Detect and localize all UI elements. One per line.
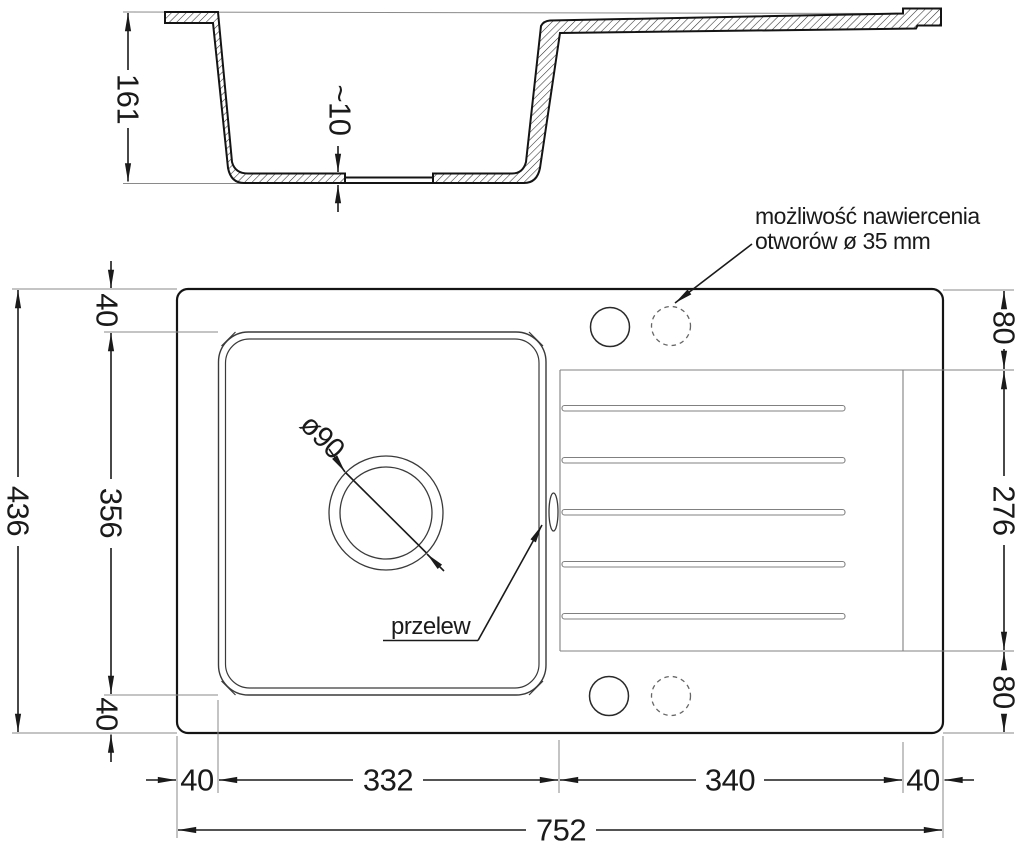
dim-drainer-offset-bottom: 80 — [987, 675, 1022, 709]
drill-note-line1: możliwość nawiercenia — [755, 203, 980, 229]
groove — [562, 406, 845, 412]
technical-drawing-page: 161 ~10 — [0, 0, 1024, 855]
tap-hole-top — [591, 308, 630, 347]
depth-value: 161 — [111, 74, 146, 124]
dim-drainer-width: 276 — [987, 485, 1022, 535]
section-view: 161 ~10 — [111, 9, 942, 213]
dim-drainer-offset-top: 80 — [987, 311, 1022, 345]
bottom-thickness-value: ~10 — [323, 84, 358, 135]
dim-basin-length: 332 — [363, 763, 413, 798]
sink-cross-section — [165, 9, 941, 184]
drill-note-line2: otworów ø 35 mm — [755, 228, 930, 254]
groove — [562, 562, 845, 568]
groove — [562, 614, 845, 620]
dim-total-width: 436 — [1, 486, 36, 536]
tap-hole-bottom — [590, 677, 629, 716]
dimension-depth: 161 — [111, 13, 146, 182]
dim-total-length: 752 — [536, 813, 586, 848]
dim-top-rim: 40 — [90, 293, 125, 327]
groove — [562, 510, 845, 516]
dim-basin-width: 356 — [94, 488, 129, 538]
dim-right-rim: 40 — [906, 763, 940, 798]
overflow-slot — [549, 493, 558, 531]
overflow-label: przelew — [391, 613, 471, 640]
dim-bottom-rim: 40 — [90, 697, 125, 731]
dim-drainer-length: 340 — [705, 763, 755, 798]
groove — [562, 458, 845, 464]
plan-view: ø90 przelew możliwość nawiercenia otworó… — [177, 203, 1014, 733]
counter-plane-line — [123, 12, 904, 14]
sink-technical-drawing: 161 ~10 — [0, 0, 1024, 855]
dim-left-rim: 40 — [180, 763, 214, 798]
dimension-bottom-thickness: ~10 — [323, 84, 358, 212]
